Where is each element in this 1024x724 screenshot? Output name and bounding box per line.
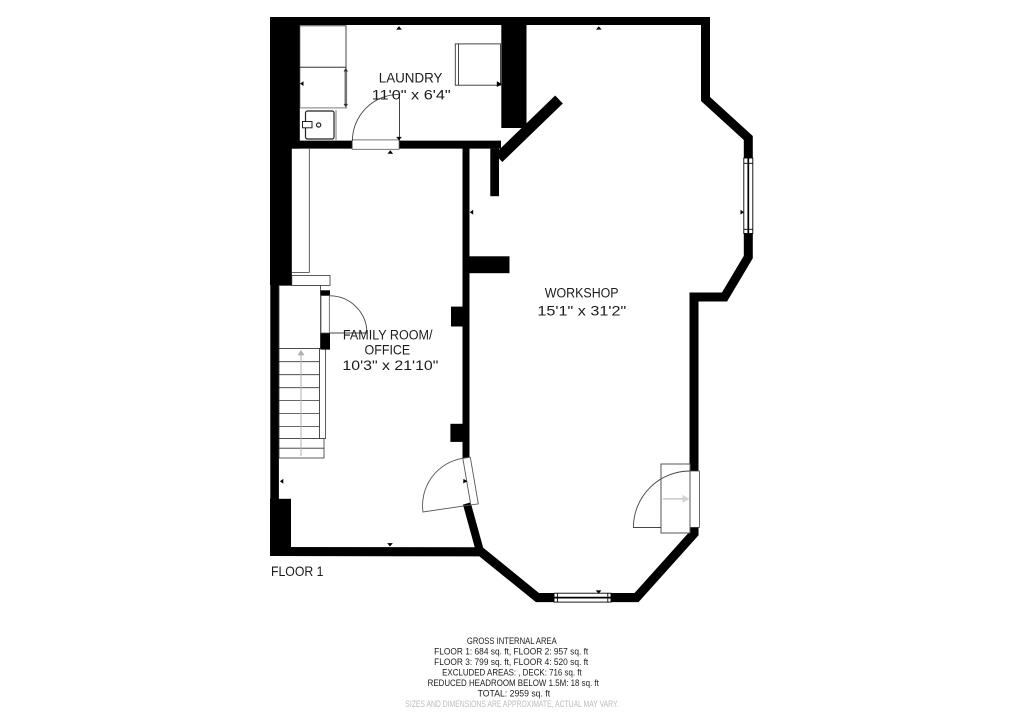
svg-text:TOTAL: 2959 sq. ft: TOTAL: 2959 sq. ft xyxy=(478,688,551,698)
svg-text:FLOOR 3: 799 sq. ft, FLOOR 4:: FLOOR 3: 799 sq. ft, FLOOR 4: 520 sq. ft xyxy=(434,657,589,667)
svg-text:REDUCED HEADROOM BELOW 1.5M: 1: REDUCED HEADROOM BELOW 1.5M: 18 sq. ft xyxy=(428,678,600,689)
svg-text:SIZES AND DIMENSIONS ARE APPRO: SIZES AND DIMENSIONS ARE APPROXIMATE, AC… xyxy=(405,699,618,709)
svg-text:WORKSHOP: WORKSHOP xyxy=(545,285,619,301)
svg-text:11'0" x 6'4": 11'0" x 6'4" xyxy=(372,88,451,104)
svg-text:FAMILY ROOM/: FAMILY ROOM/ xyxy=(343,327,433,343)
svg-text:OFFICE: OFFICE xyxy=(365,342,411,358)
svg-text:FLOOR 1: FLOOR 1 xyxy=(271,563,323,579)
svg-text:15'1" x 31'2": 15'1" x 31'2" xyxy=(537,304,626,320)
svg-text:FLOOR 1: 684 sq. ft, FLOOR 2:: FLOOR 1: 684 sq. ft, FLOOR 2: 957 sq. ft xyxy=(434,646,589,656)
svg-text:GROSS INTERNAL AREA: GROSS INTERNAL AREA xyxy=(467,635,557,646)
svg-text:10'3" x 21'10": 10'3" x 21'10" xyxy=(342,358,438,374)
svg-text:LAUNDRY: LAUNDRY xyxy=(379,70,443,85)
svg-text:EXCLUDED AREAS: , DECK: 716 sq: EXCLUDED AREAS: , DECK: 716 sq. ft xyxy=(442,667,582,678)
